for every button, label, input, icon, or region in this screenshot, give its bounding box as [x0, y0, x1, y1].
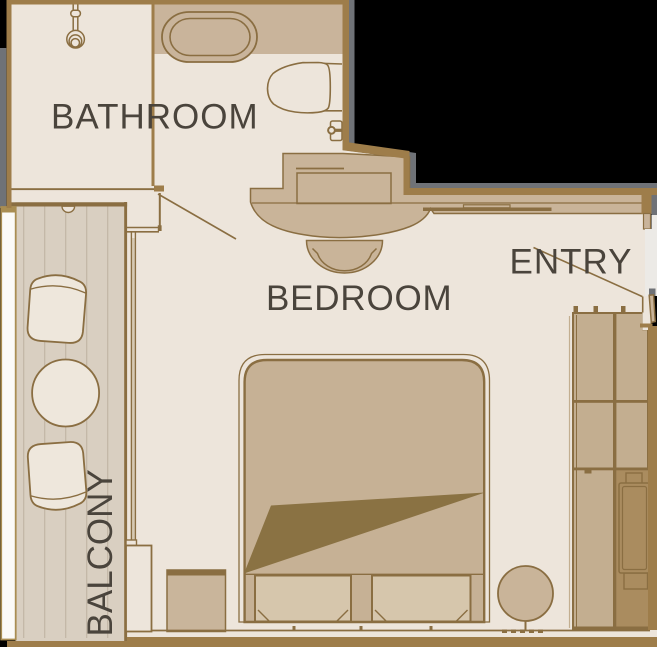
- svg-text:BATHROOM: BATHROOM: [51, 98, 259, 137]
- svg-text:ENTRY: ENTRY: [510, 243, 633, 282]
- svg-text:BEDROOM: BEDROOM: [266, 279, 452, 318]
